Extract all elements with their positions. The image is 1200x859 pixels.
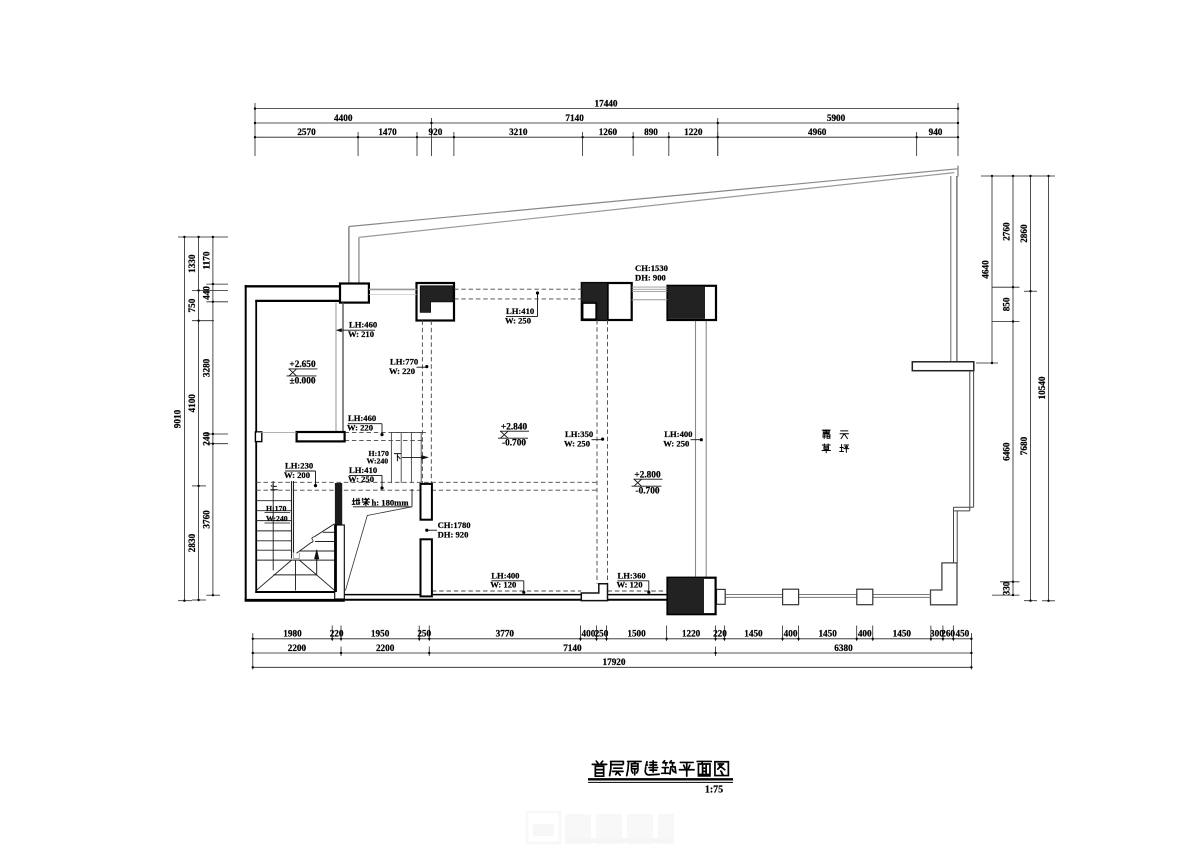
svg-text:LH:410: LH:410 xyxy=(506,306,534,316)
svg-text:H:170: H:170 xyxy=(266,504,286,513)
svg-text:400: 400 xyxy=(858,629,872,639)
svg-text:250: 250 xyxy=(417,629,431,639)
svg-text:450: 450 xyxy=(955,629,969,639)
svg-text:7680: 7680 xyxy=(1019,436,1029,455)
svg-text:-0.700: -0.700 xyxy=(635,487,659,497)
svg-text:6460: 6460 xyxy=(1002,442,1012,461)
svg-text:750: 750 xyxy=(187,298,197,312)
svg-text:DH: 900: DH: 900 xyxy=(635,273,666,283)
svg-text:2200: 2200 xyxy=(376,643,395,653)
svg-text:440: 440 xyxy=(201,286,211,300)
svg-text:920: 920 xyxy=(429,127,443,137)
svg-text:W:240: W:240 xyxy=(266,514,288,523)
svg-text:1330: 1330 xyxy=(187,254,197,273)
svg-text:4640: 4640 xyxy=(981,260,991,279)
svg-text:7140: 7140 xyxy=(563,643,582,653)
svg-text:1450: 1450 xyxy=(818,629,837,639)
svg-text:17920: 17920 xyxy=(603,657,626,667)
svg-text:6380: 6380 xyxy=(834,643,853,653)
svg-text:W: 250: W: 250 xyxy=(663,439,689,449)
svg-text:2200: 2200 xyxy=(288,643,307,653)
svg-text:1500: 1500 xyxy=(627,629,646,639)
svg-text:4400: 4400 xyxy=(334,113,353,123)
svg-text:1450: 1450 xyxy=(893,629,912,639)
svg-text:CH:1780: CH:1780 xyxy=(438,520,471,530)
svg-text:W: 250: W: 250 xyxy=(564,439,590,449)
svg-text:890: 890 xyxy=(644,127,658,137)
svg-text:1220: 1220 xyxy=(682,629,701,639)
svg-text:h: 180mm: h: 180mm xyxy=(372,497,410,507)
svg-text:LH:770: LH:770 xyxy=(390,357,418,367)
svg-text:260: 260 xyxy=(941,629,955,639)
svg-text:220: 220 xyxy=(713,629,727,639)
svg-text:10540: 10540 xyxy=(1037,376,1047,399)
svg-text:7140: 7140 xyxy=(565,113,584,123)
svg-text:W: 200: W: 200 xyxy=(284,470,310,480)
svg-text:1:75: 1:75 xyxy=(705,785,723,796)
svg-text:1450: 1450 xyxy=(744,629,763,639)
svg-text:CH:1530: CH:1530 xyxy=(635,263,668,273)
svg-text:2570: 2570 xyxy=(297,127,316,137)
svg-text:2830: 2830 xyxy=(187,533,197,552)
svg-text:±0.000: ±0.000 xyxy=(289,376,315,386)
svg-text:850: 850 xyxy=(1002,297,1012,311)
svg-text:3770: 3770 xyxy=(496,629,515,639)
svg-text:250: 250 xyxy=(595,629,609,639)
svg-text:1260: 1260 xyxy=(599,127,618,137)
svg-text:3760: 3760 xyxy=(201,510,211,529)
svg-text:17440: 17440 xyxy=(595,98,618,108)
svg-text:1220: 1220 xyxy=(684,127,703,137)
svg-text:240: 240 xyxy=(201,432,211,446)
svg-text:3280: 3280 xyxy=(201,358,211,377)
svg-text:1950: 1950 xyxy=(371,629,390,639)
svg-text:-0.700: -0.700 xyxy=(502,439,526,449)
svg-text:W: 220: W: 220 xyxy=(389,366,415,376)
svg-text:940: 940 xyxy=(929,127,943,137)
svg-text:220: 220 xyxy=(330,629,344,639)
svg-text:LH:230: LH:230 xyxy=(285,461,313,471)
svg-text:1470: 1470 xyxy=(378,127,397,137)
svg-text:400: 400 xyxy=(784,629,798,639)
svg-text:4100: 4100 xyxy=(187,394,197,413)
svg-text:1170: 1170 xyxy=(201,251,211,269)
svg-text:DH: 920: DH: 920 xyxy=(438,530,469,540)
svg-text:4960: 4960 xyxy=(808,127,827,137)
svg-text:2860: 2860 xyxy=(1019,224,1029,243)
svg-text:9010: 9010 xyxy=(173,409,183,428)
svg-text:LH:460: LH:460 xyxy=(349,320,377,330)
svg-text:3210: 3210 xyxy=(509,127,528,137)
svg-text:1980: 1980 xyxy=(283,629,302,639)
svg-text:330: 330 xyxy=(1002,581,1012,595)
svg-text:LH:460: LH:460 xyxy=(348,413,376,423)
svg-text:5900: 5900 xyxy=(827,113,846,123)
svg-text:2760: 2760 xyxy=(1002,222,1012,241)
